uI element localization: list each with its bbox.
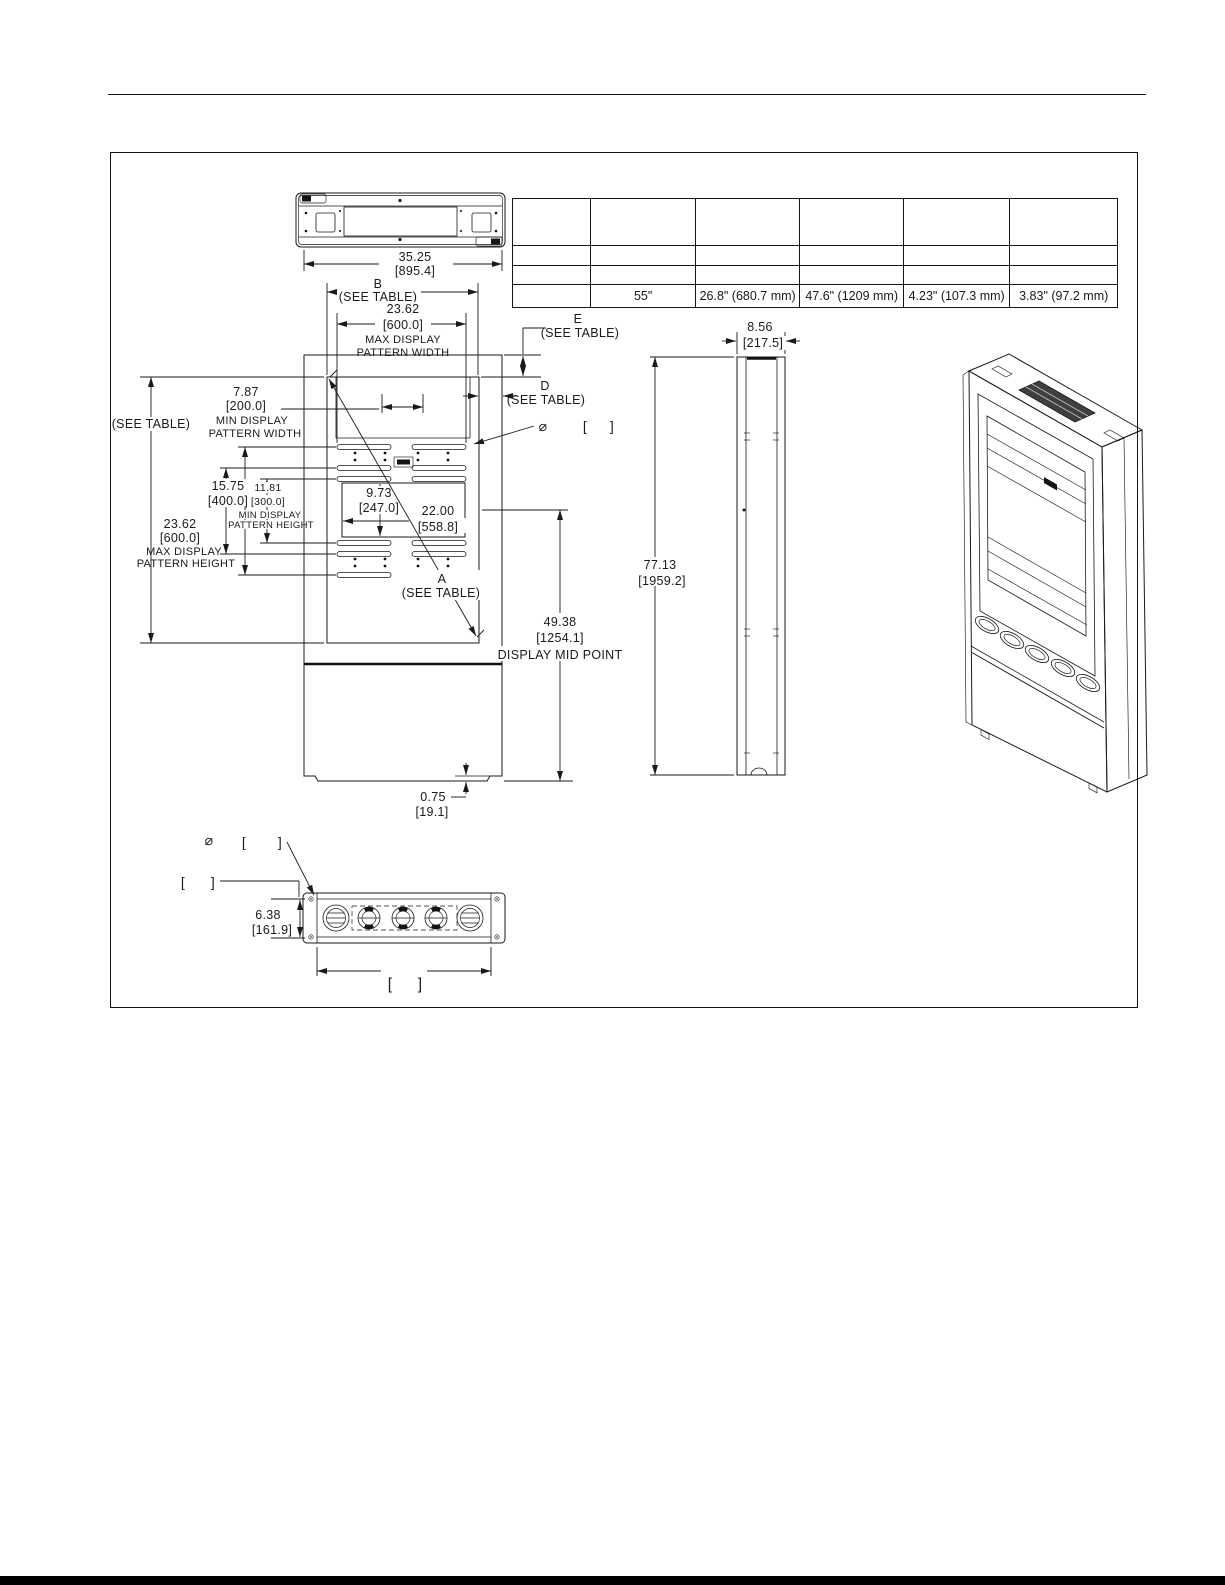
dim-d-note: (SEE TABLE) <box>507 393 586 407</box>
top-vent-grille <box>344 207 457 236</box>
dim-247-mm: [247.0] <box>359 501 399 515</box>
dia-callout-rb: ] <box>610 418 614 434</box>
iso-vent-grille <box>1019 381 1095 422</box>
dim-mid-label: DISPLAY MID POINT <box>498 648 623 662</box>
side-view <box>737 357 785 775</box>
dim-a: A <box>438 572 447 586</box>
page-footer-bar <box>0 1576 1225 1585</box>
dim-depth-mm: [217.5] <box>743 336 783 350</box>
dim-400-mm: [400.0] <box>208 494 248 508</box>
dim-max-height-l2: PATTERN HEIGHT <box>137 558 236 570</box>
isometric-view <box>963 354 1147 793</box>
front-view <box>304 355 502 781</box>
dim-max-width-l1: MAX DISPLAY <box>365 334 441 346</box>
dim-247-in: 9.73 <box>366 486 392 500</box>
dim-558-in: 22.00 <box>422 504 455 518</box>
dim-bottom-h-mm: [161.9] <box>252 923 292 937</box>
dim-height-in: 77.13 <box>644 558 677 572</box>
drawing-page: 55" 26.8" (680.7 mm) 47.6" (1209 mm) 4.2… <box>0 0 1225 1585</box>
dim-b: B <box>374 277 383 291</box>
dim-300-l2: PATTERN HEIGHT <box>228 520 314 531</box>
dia-callout-lb: [ <box>583 418 587 434</box>
dim-300-mm: [300.0] <box>251 496 285 508</box>
dim-max-width-mm: [600.0] <box>383 318 423 332</box>
dim-bottom-h-in: 6.38 <box>255 908 281 922</box>
dim-300-in: 11.81 <box>255 482 282 494</box>
bottom-dia-lb: [ <box>242 834 246 850</box>
dim-max-width-in: 23.62 <box>387 302 420 316</box>
top-view <box>296 193 505 247</box>
dim-height-mm: [1959.2] <box>638 574 686 588</box>
bottom-dia-rb: ] <box>278 834 282 850</box>
bottom-dimensions: ⌀ [ ] [ ] 6.38 [161.9] [ ] <box>181 832 491 993</box>
top-cutout-left <box>316 213 335 232</box>
bottom-width-lb: [ <box>388 976 393 993</box>
dim-max-height-l1: MAX DISPLAY <box>146 546 222 558</box>
dim-min-width-l1: MIN DISPLAY <box>216 415 289 427</box>
bottom-left-rb: ] <box>211 874 215 890</box>
dim-mid-in: 49.38 <box>544 615 577 629</box>
dim-c-note: (SEE TABLE) <box>112 417 191 431</box>
dim-overall-width-mm: [895.4] <box>395 264 435 278</box>
dim-foot-in: 0.75 <box>420 790 446 804</box>
dim-max-width-l2: PATTERN WIDTH <box>357 347 450 359</box>
bottom-view <box>303 893 505 943</box>
dim-max-height-mm: [600.0] <box>160 531 200 545</box>
top-cutout-right <box>472 213 491 232</box>
dim-400-in: 15.75 <box>212 479 245 493</box>
bottom-dia-symbol: ⌀ <box>205 832 214 848</box>
dim-e-note: (SEE TABLE) <box>541 326 620 340</box>
dim-a-note: (SEE TABLE) <box>402 586 481 600</box>
dim-overall-width-in: 35.25 <box>399 250 432 264</box>
dim-foot-mm: [19.1] <box>415 805 448 819</box>
dim-min-width-in: 7.87 <box>233 385 259 399</box>
front-dimensions: 35.25 [895.4] B (SEE TABLE) 23.62 [600.0… <box>112 249 623 819</box>
dim-e: E <box>574 312 583 326</box>
bottom-width-rb: ] <box>418 976 423 993</box>
iso-cable-holes <box>972 613 1102 695</box>
dim-558-mm: [558.8] <box>418 520 458 534</box>
dia-callout-symbol: ⌀ <box>539 418 548 434</box>
dim-min-width-mm: [200.0] <box>226 399 266 413</box>
dim-min-width-l2: PATTERN WIDTH <box>209 428 302 440</box>
engineering-drawing: 35.25 [895.4] B (SEE TABLE) 23.62 [600.0… <box>0 0 1225 1585</box>
dim-depth-in: 8.56 <box>747 320 773 334</box>
dim-d: D <box>540 379 549 393</box>
bottom-left-lb: [ <box>181 874 185 890</box>
dim-max-height-in: 23.62 <box>164 517 197 531</box>
side-dimensions: 8.56 [217.5] 77.13 [1959.2] <box>630 320 800 775</box>
dim-mid-mm: [1254.1] <box>536 631 584 645</box>
